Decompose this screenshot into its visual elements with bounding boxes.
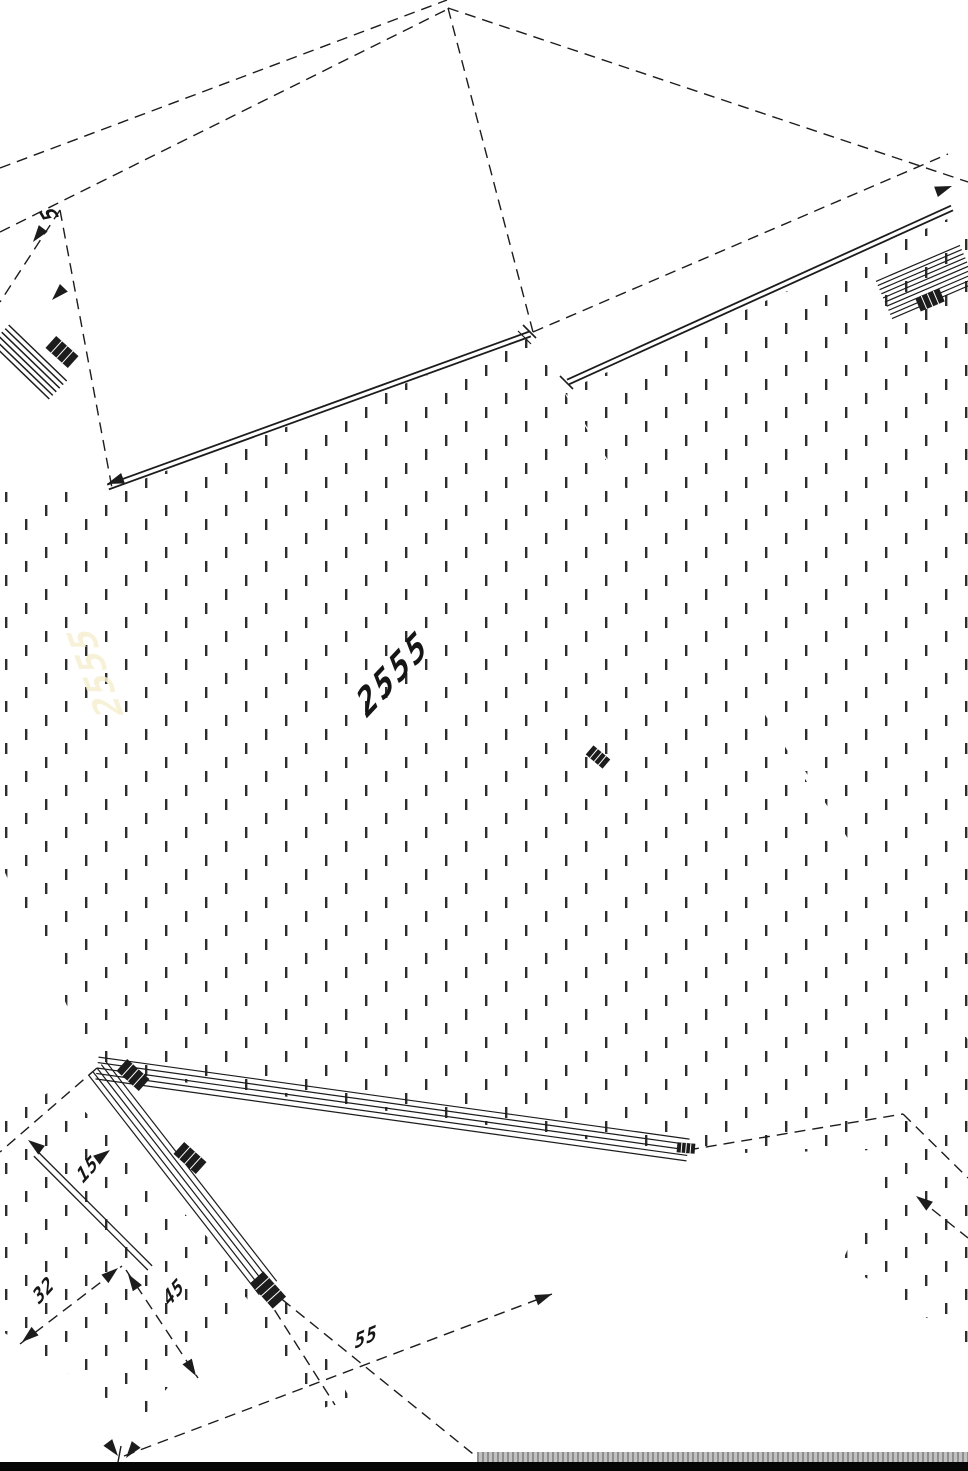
connector-block bbox=[45, 336, 78, 368]
taskbar-edge bbox=[0, 1462, 968, 1471]
connector-block bbox=[677, 1142, 696, 1154]
cad-drawing bbox=[0, 0, 968, 1471]
screenshot-stage: 2555 2555 5 15 32 45 55 bbox=[0, 0, 968, 1471]
